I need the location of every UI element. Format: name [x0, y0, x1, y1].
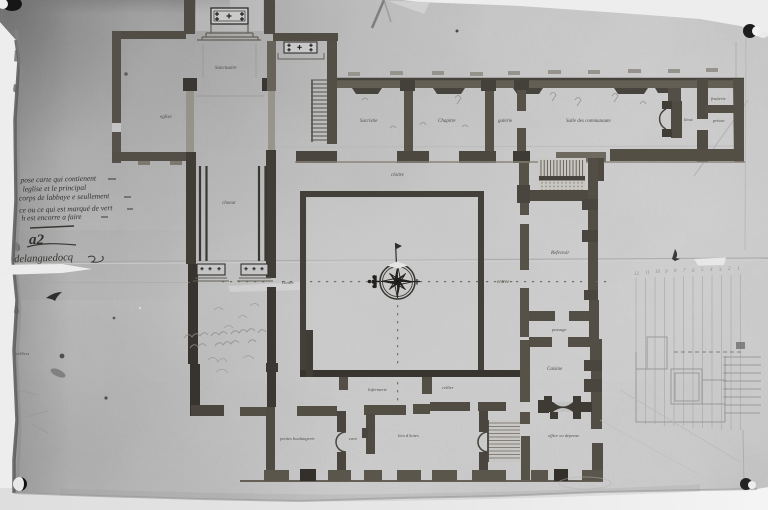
svg-text:prison: prison	[712, 118, 725, 123]
svg-text:choeur: choeur	[222, 201, 236, 206]
svg-text:lieu d hotes: lieu d hotes	[398, 433, 419, 438]
svg-text:Cuisine: Cuisine	[547, 367, 563, 372]
svg-text:cave: cave	[349, 436, 357, 441]
svg-text:delanguedocq: delanguedocq	[14, 252, 73, 265]
svg-text:cellier: cellier	[442, 385, 454, 390]
svg-text:petites boulangerie: petites boulangerie	[279, 436, 315, 441]
svg-text:1: 1	[737, 267, 740, 272]
svg-text:fruiterie: fruiterie	[711, 96, 726, 101]
svg-text:11: 11	[645, 271, 650, 276]
svg-text:lieux: lieux	[684, 117, 693, 122]
svg-text:eglise: eglise	[160, 115, 172, 120]
svg-text:Chapitre: Chapitre	[438, 119, 456, 124]
svg-text:galerie: galerie	[498, 119, 513, 124]
svg-text:Salle des communaute: Salle des communaute	[566, 119, 611, 124]
svg-text:Sacristie: Sacristie	[360, 119, 378, 124]
svg-text:10: 10	[655, 270, 661, 275]
svg-text:Refectoir: Refectoir	[550, 251, 569, 256]
svg-text:12: 12	[634, 272, 640, 277]
svg-text:Infermerie: Infermerie	[367, 387, 387, 392]
svg-text:cloitre: cloitre	[391, 173, 405, 178]
svg-text:celliers: celliers	[16, 351, 29, 356]
svg-text:entree: entree	[497, 280, 510, 285]
svg-text:office ou depense: office ou depense	[548, 433, 579, 438]
svg-text:h est encorre a faire: h est encorre a faire	[21, 212, 82, 223]
svg-text:Sanctuaire: Sanctuaire	[215, 66, 237, 71]
svg-text:cloitre: cloitre	[282, 280, 294, 285]
svg-text:passage: passage	[551, 327, 567, 332]
